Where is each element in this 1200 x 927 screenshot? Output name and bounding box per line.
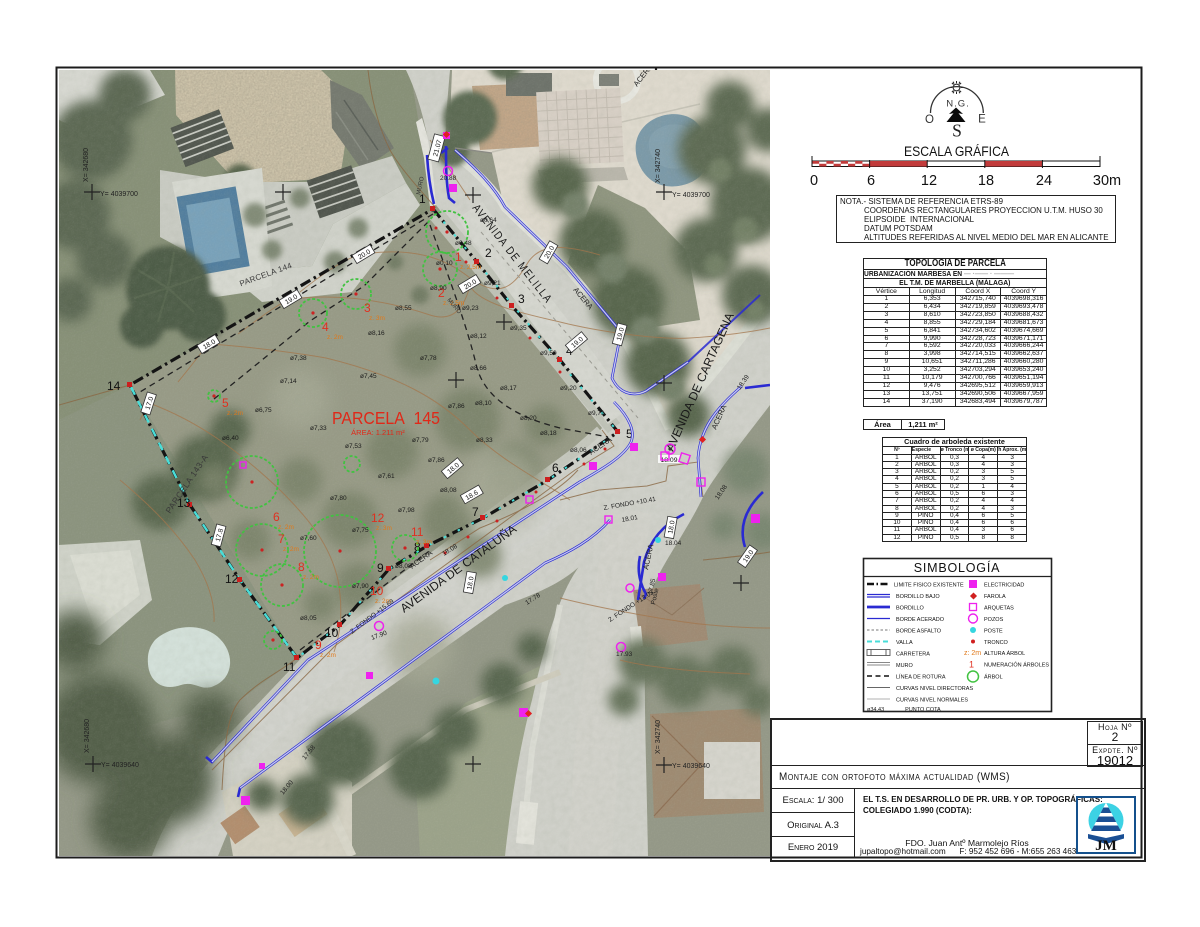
svg-text:0: 0 [810,173,818,189]
svg-text:X= 342680: X= 342680 [83,148,90,182]
svg-text:z. 2,5m: z. 2,5m [460,264,481,271]
svg-text:z. 2m: z. 2m [327,334,343,341]
svg-text:ø7,80: ø7,80 [330,495,347,502]
svg-text:JM: JM [1095,838,1117,852]
svg-text:z. 3m: z. 3m [416,539,432,546]
svg-text:ø8,08: ø8,08 [395,563,412,570]
svg-text:ø7,78: ø7,78 [420,355,437,362]
svg-text:ø6,75: ø6,75 [255,407,272,414]
svg-text:ø8,17: ø8,17 [500,385,517,392]
svg-text:30m: 30m [1093,173,1121,189]
svg-text:ÁRBOL: ÁRBOL [984,674,1003,681]
svg-text:X= 342740: X= 342740 [655,720,662,754]
svg-text:NUMERACIÓN ÁRBOLES: NUMERACIÓN ÁRBOLES [984,662,1049,669]
svg-text:ø8,08: ø8,08 [440,487,457,494]
svg-text:z. 3m: z. 3m [369,315,385,322]
svg-text:CARRETERA: CARRETERA [896,652,930,658]
svg-text:1: 1 [969,660,974,670]
svg-text:ELECTRICIDAD: ELECTRICIDAD [984,583,1024,589]
svg-text:ø6,40: ø6,40 [222,435,239,442]
svg-text:BORDE ASFALTO: BORDE ASFALTO [896,629,942,635]
svg-text:Y= 4039640: Y= 4039640 [101,762,139,769]
svg-text:ø7,86: ø7,86 [448,403,465,410]
svg-text:ø8,66: ø8,66 [470,365,487,372]
svg-text:SIMBOLOGÍA: SIMBOLOGÍA [914,560,1001,575]
svg-text:12: 12 [225,572,239,586]
svg-text:VALLA: VALLA [896,640,913,646]
svg-text:ø8,10: ø8,10 [475,400,492,407]
svg-text:z. 2m: z. 2m [227,410,243,417]
svg-text:ø0,10: ø0,10 [436,260,453,267]
svg-text:PARCELA 145: PARCELA 145 [332,408,440,428]
svg-text:ø9,20: ø9,20 [560,385,577,392]
svg-text:ø7,61: ø7,61 [378,473,395,480]
svg-text:9: 9 [315,638,322,652]
svg-text:7: 7 [278,532,285,546]
svg-text:ø7,98: ø7,98 [398,507,415,514]
svg-text:LÍNEA DE ROTURA: LÍNEA DE ROTURA [896,674,946,681]
svg-text:O: O [925,114,934,126]
svg-text:14: 14 [107,379,121,393]
svg-text:ø9,71: ø9,71 [588,410,605,417]
svg-text:ø8,18: ø8,18 [540,430,557,437]
svg-text:z. 2m: z. 2m [278,524,294,531]
svg-text:N.G.: N.G. [946,99,970,110]
svg-text:ø8,55: ø8,55 [395,305,412,312]
svg-text:3: 3 [518,292,525,306]
svg-text:ÁREA: 1.211 m²: ÁREA: 1.211 m² [351,428,405,437]
svg-text:z. 2m: z. 2m [303,574,319,581]
svg-text:5: 5 [222,396,229,410]
svg-text:z. 2m: z. 2m [320,652,336,659]
svg-text:POZOS: POZOS [984,617,1004,623]
svg-text:ø7,86: ø7,86 [428,457,445,464]
svg-text:ø34,43: ø34,43 [867,707,884,713]
svg-text:9: 9 [377,561,384,575]
svg-text:Y= 4039700: Y= 4039700 [672,192,710,199]
svg-text:10: 10 [325,626,339,640]
svg-text:S: S [952,121,962,141]
svg-text:ø7,38: ø7,38 [290,355,307,362]
svg-text:ESCALA GRÁFICA: ESCALA GRÁFICA [904,143,1010,159]
svg-text:ø8,12: ø8,12 [470,333,487,340]
svg-text:ø7,14: ø7,14 [280,378,297,385]
svg-text:CURVAS NIVEL DIRECTORAS: CURVAS NIVEL DIRECTORAS [896,686,973,692]
svg-text:ø9,50: ø9,50 [540,350,557,357]
svg-text:18: 18 [978,173,994,189]
svg-text:4: 4 [322,320,329,334]
svg-text:2: 2 [485,246,492,260]
svg-text:7: 7 [472,505,479,519]
svg-text:FAROLA: FAROLA [984,594,1006,600]
svg-text:BORDE ACERADO: BORDE ACERADO [896,617,945,623]
svg-text:12: 12 [921,173,937,189]
svg-text:11: 11 [411,525,424,539]
svg-text:6: 6 [867,173,875,189]
svg-text:ø9,21: ø9,21 [484,280,501,287]
svg-text:ø9,23: ø9,23 [462,305,479,312]
svg-text:ø7,79: ø7,79 [412,437,429,444]
svg-text:BORDILLO BAJO: BORDILLO BAJO [896,594,940,600]
svg-text:Y= 4039700: Y= 4039700 [100,191,138,198]
svg-text:PUNTO COTA: PUNTO COTA [896,707,941,713]
svg-text:X= 342680: X= 342680 [84,719,91,753]
svg-text:12: 12 [371,511,385,525]
svg-text:ø8,05: ø8,05 [300,615,317,622]
svg-text:ø8,06: ø8,06 [570,447,587,454]
svg-text:10: 10 [370,584,384,598]
svg-text:ø7,75: ø7,75 [352,527,369,534]
svg-text:X= 342740: X= 342740 [655,149,662,183]
svg-text:E: E [978,114,986,126]
svg-text:TRONCO: TRONCO [984,640,1009,646]
svg-text:11: 11 [283,660,296,674]
svg-text:ø8,33: ø8,33 [476,437,493,444]
svg-text:ø0,48: ø0,48 [455,240,472,247]
svg-text:17.93: 17.93 [616,651,633,658]
svg-text:20.88: 20.88 [440,175,457,182]
svg-text:ø7,53: ø7,53 [345,443,362,450]
svg-text:ALTURA ÁRBOL: ALTURA ÁRBOL [984,650,1025,657]
svg-text:ø0,64: ø0,64 [480,217,497,224]
svg-text:6: 6 [273,510,280,524]
svg-text:8: 8 [298,560,305,574]
svg-text:ø8,20: ø8,20 [520,415,537,422]
svg-text:ø7,90: ø7,90 [352,583,369,590]
svg-text:1: 1 [455,250,462,264]
svg-text:z. 3m: z. 3m [376,525,392,532]
svg-text:ARQUETAS: ARQUETAS [984,606,1014,612]
svg-text:ø9,35: ø9,35 [510,325,527,332]
svg-text:6: 6 [552,461,559,475]
svg-text:LIMITE FISICO EXISTENTE: LIMITE FISICO EXISTENTE [894,583,964,589]
svg-text:ø8,16: ø8,16 [368,330,385,337]
svg-text:18.04: 18.04 [665,540,682,547]
svg-text:MURO: MURO [896,663,914,669]
svg-text:ø8,90: ø8,90 [430,285,447,292]
svg-text:24: 24 [1036,173,1052,189]
svg-text:Y= 4039640: Y= 4039640 [672,763,710,770]
svg-text:POSTE: POSTE [984,629,1003,635]
svg-text:ø7,60: ø7,60 [300,535,317,542]
svg-text:3: 3 [364,301,371,315]
svg-text:ø7,33: ø7,33 [310,425,327,432]
svg-text:ø7,45: ø7,45 [360,373,377,380]
svg-text:CURVAS NIVEL NORMALES: CURVAS NIVEL NORMALES [896,698,968,704]
svg-text:z: 2m: z: 2m [964,650,981,657]
svg-text:z. 2m: z. 2m [283,546,299,553]
svg-text:BORDILLO: BORDILLO [896,606,925,612]
